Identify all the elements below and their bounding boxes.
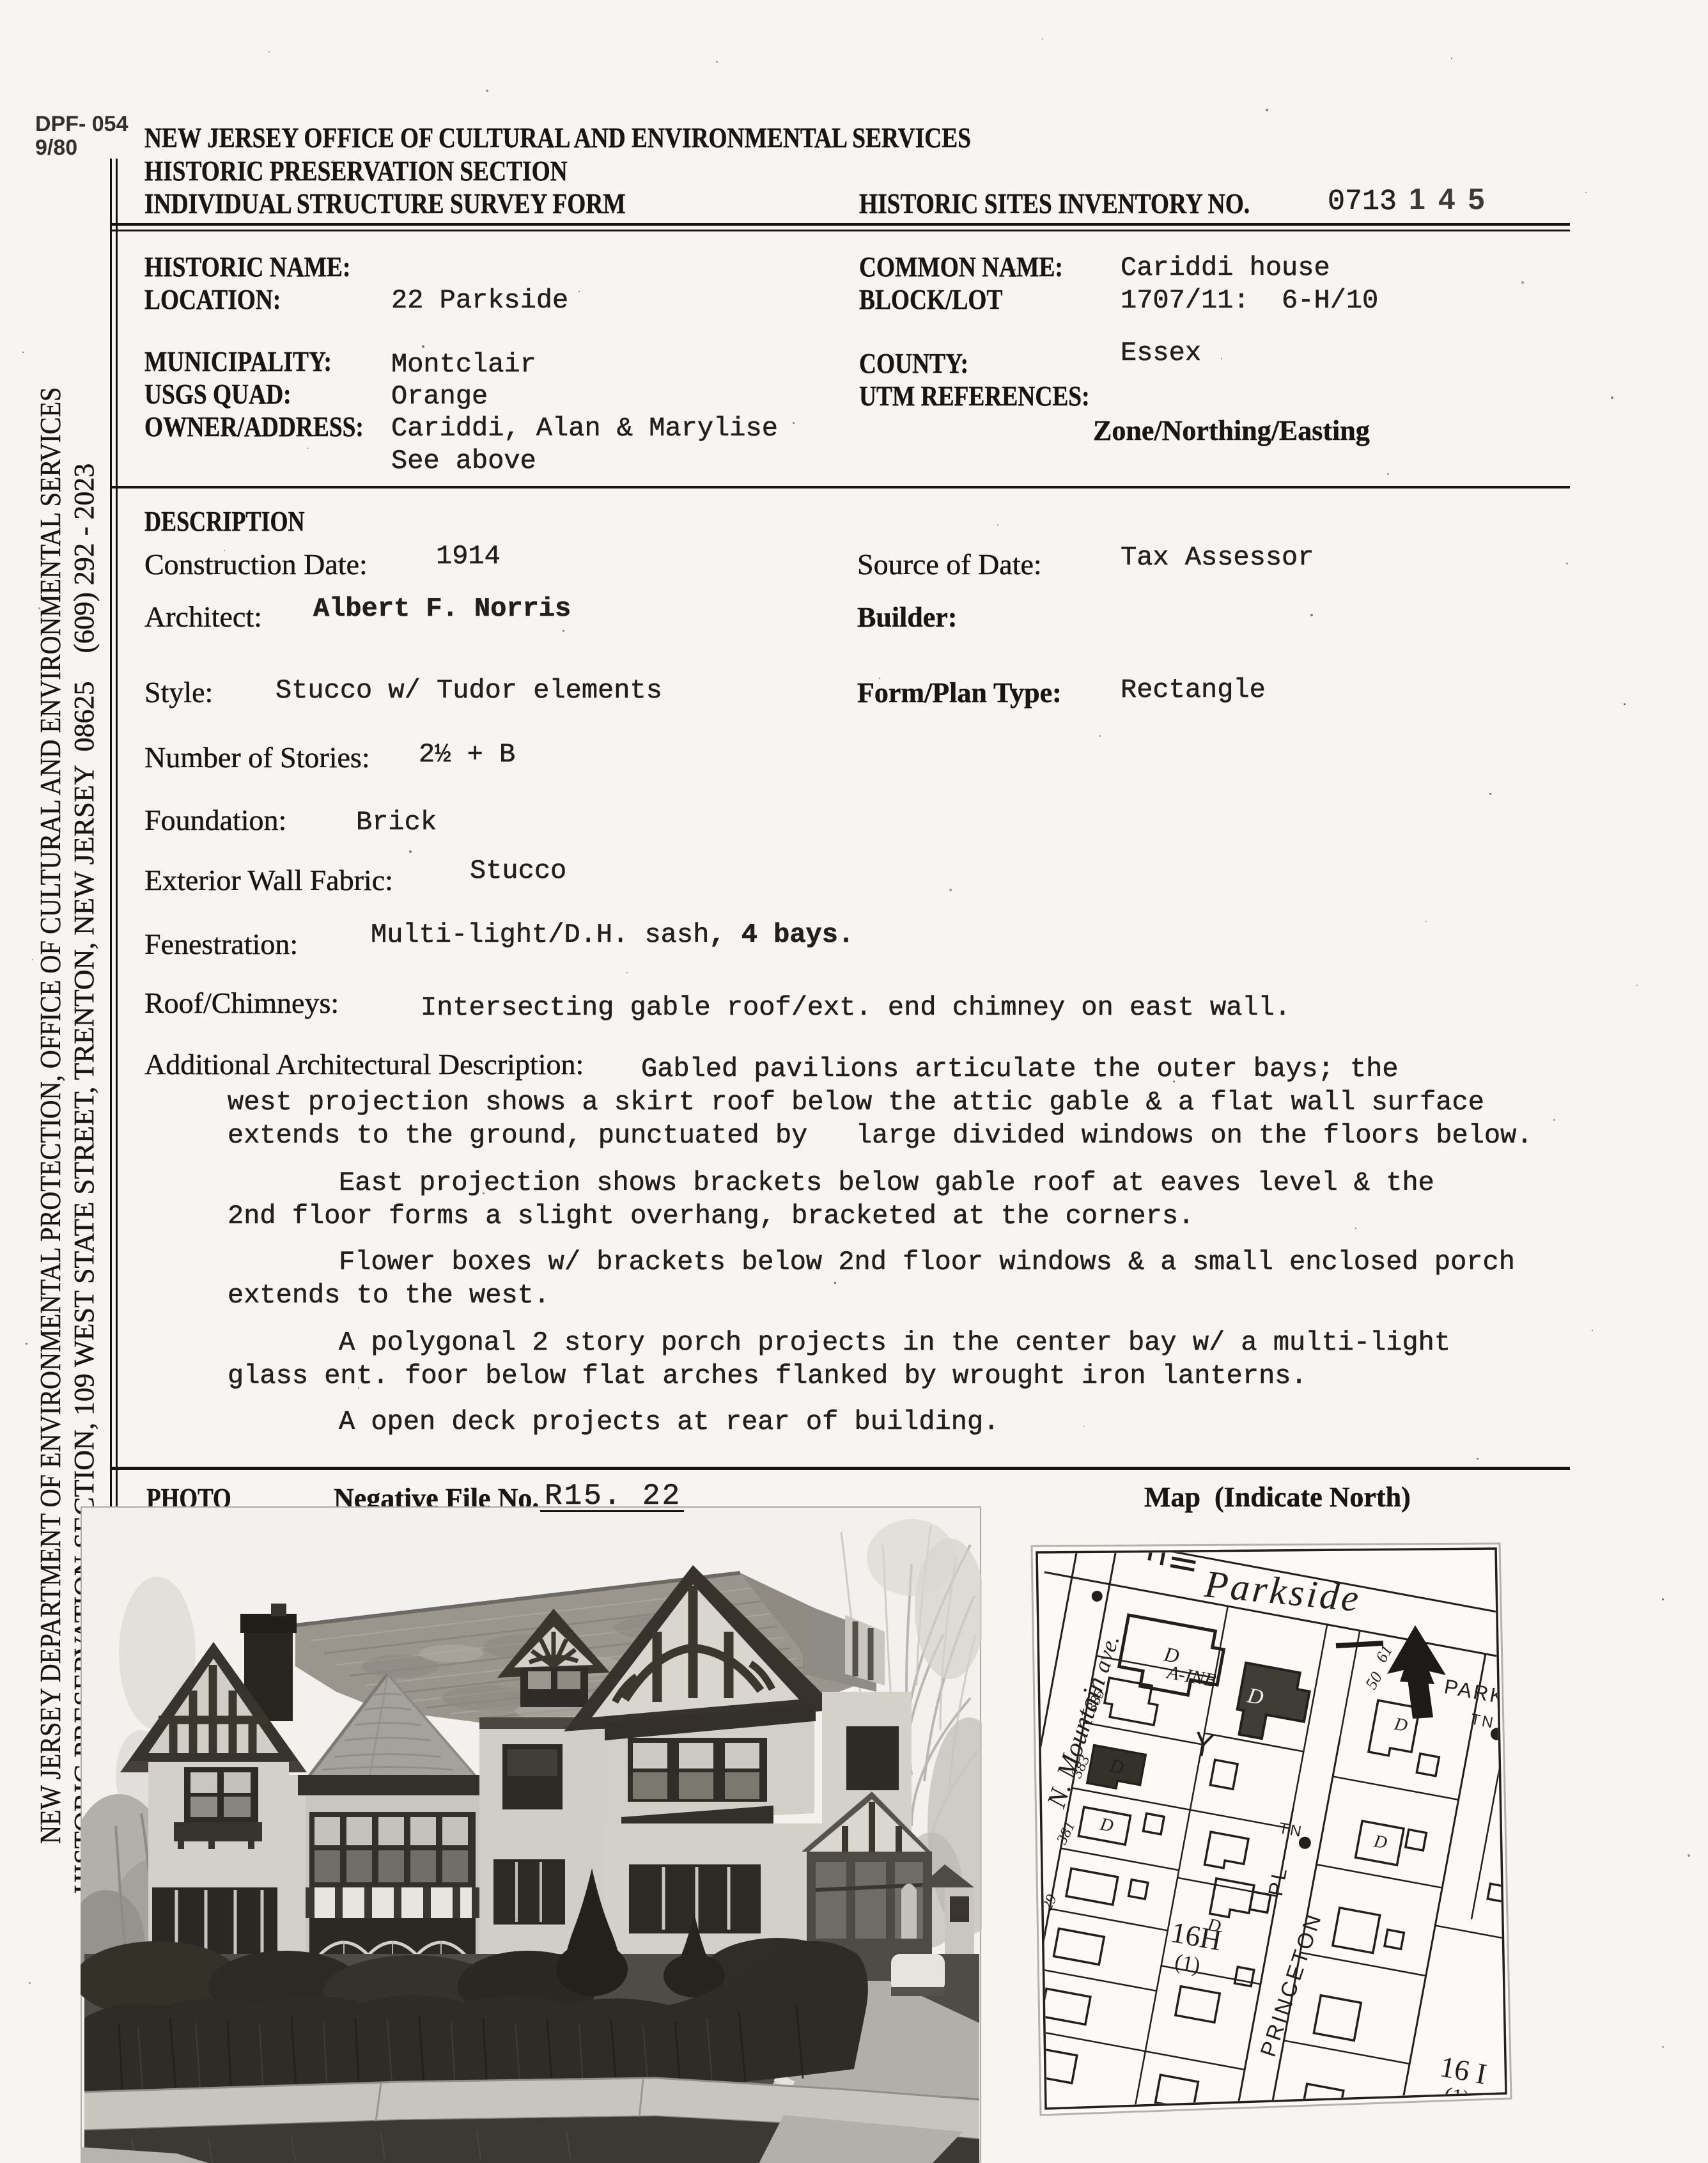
svg-text:(1): (1) <box>1173 1950 1202 1978</box>
